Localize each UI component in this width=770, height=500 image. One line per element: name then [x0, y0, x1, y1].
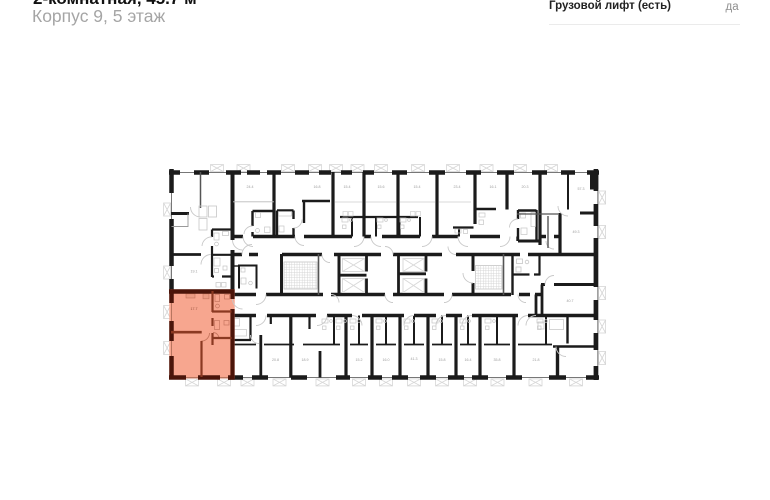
svg-text:16.0: 16.0	[383, 358, 390, 362]
svg-text:17.7: 17.7	[191, 307, 198, 311]
svg-text:20.8: 20.8	[272, 358, 279, 362]
svg-text:57.3: 57.3	[578, 187, 585, 191]
svg-text:21.8: 21.8	[533, 358, 540, 362]
svg-text:35.8: 35.8	[494, 358, 501, 362]
svg-text:15.2: 15.2	[356, 358, 363, 362]
svg-text:15.4: 15.4	[344, 185, 351, 189]
svg-text:16.1: 16.1	[490, 185, 497, 189]
svg-text:49.3: 49.3	[573, 230, 580, 234]
svg-text:18.9: 18.9	[302, 358, 309, 362]
svg-text:16.8: 16.8	[314, 185, 321, 189]
svg-text:24.4: 24.4	[247, 185, 254, 189]
svg-text:23.4: 23.4	[454, 185, 461, 189]
svg-text:20.3: 20.3	[522, 185, 529, 189]
svg-text:19.1: 19.1	[191, 270, 198, 274]
svg-text:15.8: 15.8	[439, 358, 446, 362]
svg-text:15.6: 15.6	[378, 185, 385, 189]
svg-text:40.7: 40.7	[567, 299, 574, 303]
svg-text:41.3: 41.3	[411, 357, 418, 361]
svg-text:16.4: 16.4	[465, 358, 472, 362]
svg-text:15.4: 15.4	[414, 185, 421, 189]
